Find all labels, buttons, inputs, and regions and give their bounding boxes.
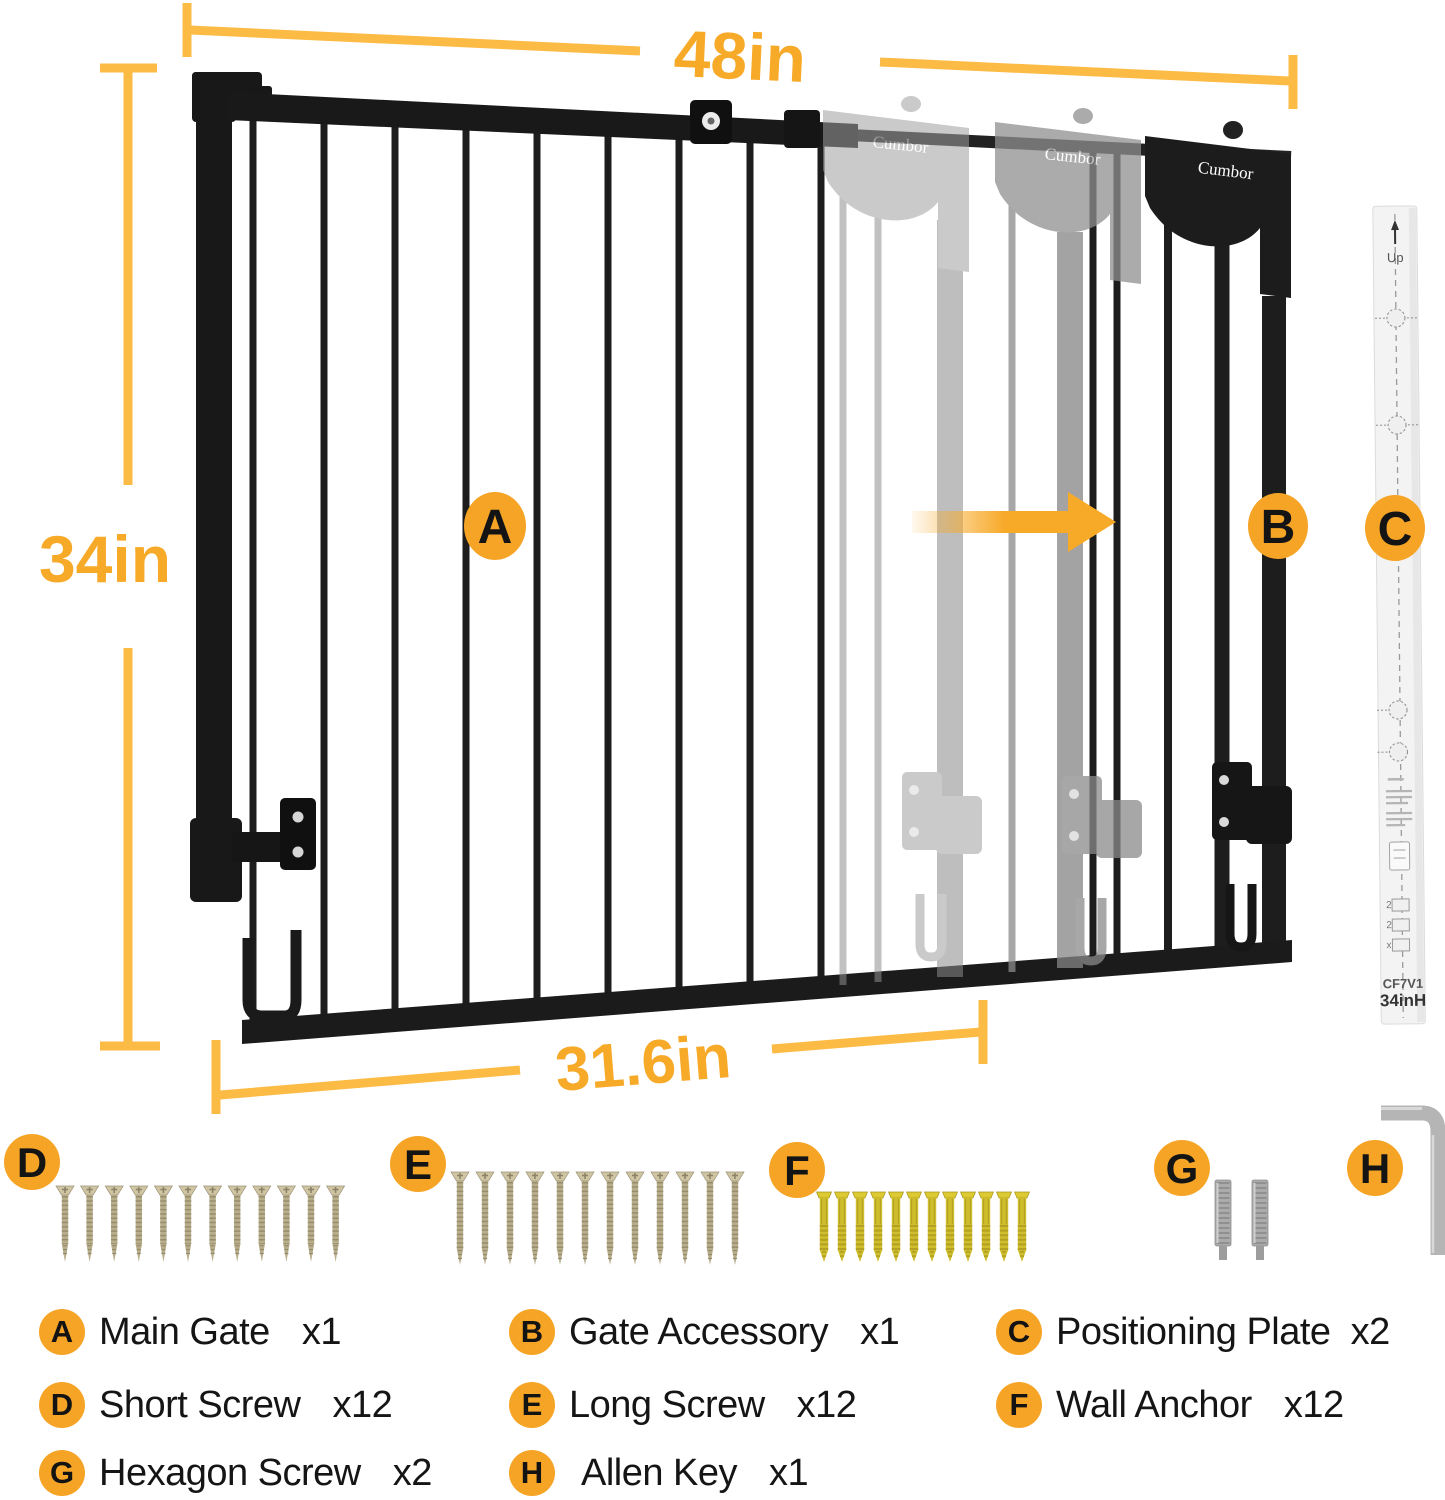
wall-anchors-group [817, 1192, 1030, 1262]
plate-model: CF7V1 [1383, 976, 1424, 991]
legend-qty: x12 [1284, 1384, 1344, 1427]
callout-f-letter: F [784, 1147, 810, 1194]
short-screws-group [56, 1186, 345, 1262]
legend-qty: x12 [332, 1384, 392, 1427]
legend-label: Wall Anchor [1056, 1384, 1252, 1427]
legend-item-wall-anchor: F Wall Anchor x12 [996, 1382, 1344, 1428]
callout-c-letter: C [1378, 503, 1413, 556]
legend-f-badge: F [996, 1382, 1042, 1428]
legend-qty: x2 [1351, 1311, 1390, 1354]
legend-qty: x12 [797, 1384, 857, 1427]
callout-e-letter: E [404, 1141, 432, 1188]
callout-a-letter: A [478, 501, 513, 554]
legend-item-gate-accessory: B Gate Accessory x1 [509, 1309, 899, 1355]
dimension-48in-label: 48in [672, 16, 807, 96]
rail-bracket-2 [784, 110, 820, 148]
plate-qty-rows: 2 2 x [1386, 899, 1410, 951]
legend-item-hexagon-screw: G Hexagon Screw x2 [39, 1450, 432, 1496]
legend-label: Main Gate [99, 1311, 270, 1354]
dimension-34in: 34in [39, 68, 171, 1046]
legend-item-short-screw: D Short Screw x12 [39, 1382, 392, 1428]
legend-g-badge: G [39, 1450, 85, 1496]
gate-diagram: Cumbor Cumbor Cumbor Up [0, 0, 1445, 1290]
hardware-parts: D E F G H [4, 1109, 1438, 1266]
legend-label: Hexagon Screw [99, 1452, 361, 1495]
legend-e-badge: E [509, 1382, 555, 1428]
gate-illustration: Cumbor Cumbor Cumbor [190, 72, 1292, 1044]
bottom-rail [242, 940, 1292, 1044]
dimension-34in-label: 34in [39, 522, 171, 596]
legend-d-badge: D [39, 1382, 85, 1428]
svg-text:2: 2 [1386, 920, 1392, 931]
legend-qty: x1 [860, 1311, 899, 1354]
plate-up-label: Up [1387, 250, 1404, 265]
dimension-48in: 48in [187, 3, 1293, 109]
plate-height: 34inH [1380, 991, 1426, 1010]
callout-b-letter: B [1261, 501, 1296, 554]
legend-label: Positioning Plate [1056, 1311, 1331, 1354]
dimension-31-6in-label: 31.6in [553, 1022, 734, 1105]
legend-label: Short Screw [99, 1384, 300, 1427]
legend-qty: x1 [302, 1311, 341, 1354]
legend-label: Long Screw [569, 1384, 765, 1427]
legend-item-main-gate: A Main Gate x1 [39, 1309, 341, 1355]
legend-label: Allen Key [581, 1452, 737, 1495]
callout-h-letter: H [1360, 1145, 1390, 1192]
callout-g-letter: G [1166, 1145, 1199, 1192]
legend-item-positioning-plate: C Positioning Plate x2 [996, 1309, 1390, 1355]
plate-diagram [1389, 842, 1409, 870]
positioning-plate: Up 2 2 x CF7V1 [1372, 206, 1427, 1024]
ghost-section-1: Cumbor [823, 96, 982, 985]
legend-qty: x1 [769, 1452, 808, 1495]
svg-text:x: x [1386, 940, 1391, 951]
legend-item-long-screw: E Long Screw x12 [509, 1382, 856, 1428]
legend-qty: x2 [393, 1452, 432, 1495]
callout-d-letter: D [17, 1139, 47, 1186]
hex-screws-group [1215, 1180, 1268, 1260]
legend-label: Gate Accessory [569, 1311, 828, 1354]
svg-text:2: 2 [1386, 900, 1392, 911]
legend-b-badge: B [509, 1309, 555, 1355]
legend-item-allen-key: H Allen Key x1 [509, 1450, 808, 1496]
long-screws-group [451, 1172, 744, 1265]
legend-h-badge: H [509, 1450, 555, 1496]
legend-a-badge: A [39, 1309, 85, 1355]
legend-c-badge: C [996, 1309, 1042, 1355]
